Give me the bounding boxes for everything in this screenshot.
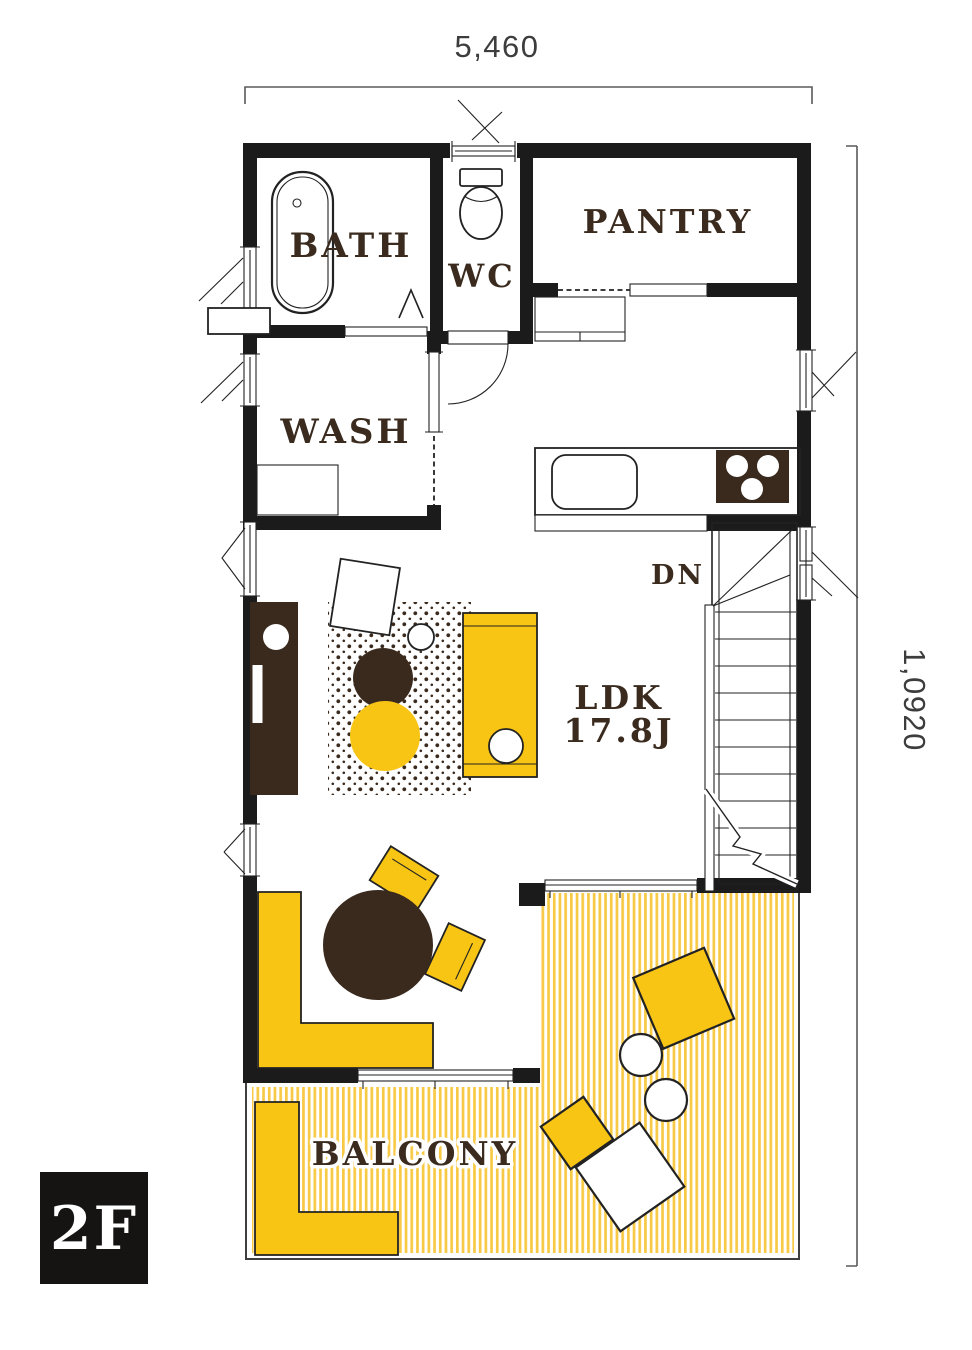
window-open-symbol xyxy=(222,528,245,589)
room-label-wc: WC xyxy=(447,257,515,295)
stairs: DN xyxy=(651,523,797,891)
wall-hall-2 xyxy=(508,331,533,344)
dining-table xyxy=(323,890,433,1000)
stair-break-gap xyxy=(706,789,797,884)
wall-ldk-south-2 xyxy=(513,1068,540,1083)
toilet xyxy=(460,169,502,239)
wall-corner-post xyxy=(519,883,545,906)
window-wc-top xyxy=(452,100,515,162)
bath-folding-door xyxy=(345,290,427,336)
burner xyxy=(726,455,748,477)
room-pantry: PANTRY xyxy=(535,202,753,341)
folding-door-symbol xyxy=(399,290,423,318)
wall-top-left xyxy=(243,143,450,158)
window-ldk-left-upper xyxy=(222,522,260,596)
room-label-ldk-size: 17.8J xyxy=(564,711,675,750)
room-bath: BATH xyxy=(272,172,412,313)
bath-exterior-ledge xyxy=(208,308,270,334)
floor-badge: 2F xyxy=(40,1172,148,1284)
wall-left-5 xyxy=(243,876,257,1083)
stair-direction-lines xyxy=(713,528,794,606)
floor-plan-page: 5,460 1,0920 xyxy=(0,0,972,1350)
floor-plan-drawing: 5,460 1,0920 xyxy=(0,0,972,1350)
burner xyxy=(757,455,779,477)
window-open-symbol xyxy=(812,352,856,398)
kitchen-sink xyxy=(552,455,637,509)
kitchen-counter-edge xyxy=(535,515,707,531)
dimension-top: 5,460 xyxy=(245,29,812,104)
wash-sliding-door xyxy=(425,352,443,505)
sofa-cushion xyxy=(489,729,523,763)
wall-bath-wc xyxy=(430,143,443,335)
tv-board-slot xyxy=(253,665,263,723)
window-open-symbol xyxy=(812,552,858,598)
window-open-symbol xyxy=(458,100,502,143)
wall-right-2 xyxy=(797,411,811,527)
bathtub-drain xyxy=(293,199,301,207)
window-right-upper xyxy=(796,350,856,411)
wall-wash-south xyxy=(243,516,441,530)
dimension-top-value: 5,460 xyxy=(454,29,539,64)
balcony-stool xyxy=(645,1079,687,1121)
hall-shelf xyxy=(535,297,625,341)
door-swing-arc xyxy=(448,344,508,404)
pantry-sliding-door xyxy=(558,284,707,296)
tv-board xyxy=(250,602,298,795)
floor-cushion-white xyxy=(330,559,400,636)
stairs-down-label: DN xyxy=(651,560,705,591)
wall-pantry-south-1 xyxy=(533,283,558,297)
washing-machine xyxy=(257,465,338,515)
side-table-small xyxy=(408,624,434,650)
tv-board-speaker xyxy=(263,624,289,650)
window-open-symbol xyxy=(224,829,245,874)
wall-right-1 xyxy=(797,143,811,350)
coffee-table-yellow xyxy=(350,701,420,771)
burner xyxy=(741,478,763,500)
dimension-right: 1,0920 xyxy=(846,146,932,1266)
wall-ldk-south-1 xyxy=(243,1068,358,1083)
room-wash: WASH xyxy=(257,412,412,515)
window-ldk-left-lower xyxy=(224,824,260,876)
wall-wc-pantry xyxy=(520,143,533,344)
coffee-table-dark xyxy=(353,648,413,708)
sofa xyxy=(463,613,537,777)
wall-pantry-south-2 xyxy=(707,283,797,297)
window-wash xyxy=(201,354,260,406)
room-label-pantry: PANTRY xyxy=(583,202,754,241)
window-bath xyxy=(199,247,270,334)
hall-swing-door xyxy=(448,331,508,404)
window-open-symbol xyxy=(201,362,243,403)
window-right-stairs xyxy=(796,527,858,600)
dimension-right-value: 1,0920 xyxy=(897,648,932,752)
room-label-balcony: BALCONY xyxy=(312,1134,518,1173)
room-label-bath: BATH xyxy=(290,226,413,266)
wall-top-right xyxy=(517,143,811,158)
room-label-wash: WASH xyxy=(279,412,411,452)
dimension-top-bracket xyxy=(245,87,812,104)
dimension-right-line xyxy=(846,146,857,1266)
balcony-stool xyxy=(620,1034,662,1076)
cooktop xyxy=(716,450,789,503)
room-wc: WC xyxy=(447,169,515,295)
wall-right-3 xyxy=(797,600,811,891)
dining-chair xyxy=(425,923,485,991)
wall-left-1 xyxy=(243,143,257,247)
ldk-south-sliding-door xyxy=(358,1070,513,1089)
wall-left-3 xyxy=(243,406,257,522)
floor-badge-text: 2F xyxy=(50,1194,138,1264)
wall-hall-1 xyxy=(427,331,448,344)
stair-rail-wall xyxy=(705,605,714,891)
window-open-symbol xyxy=(199,258,243,304)
stairwell xyxy=(712,523,797,891)
